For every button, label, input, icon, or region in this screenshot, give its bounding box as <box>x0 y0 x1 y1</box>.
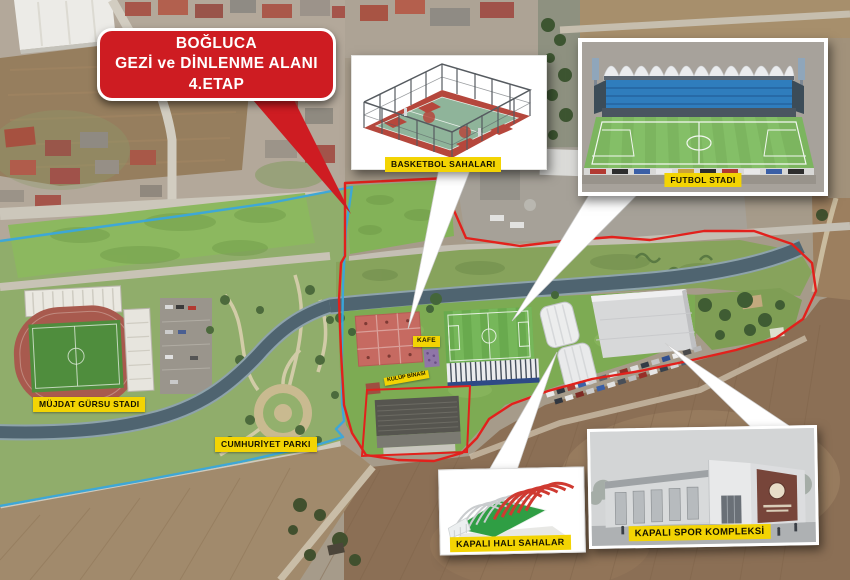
basketball-render <box>352 56 546 169</box>
inset-basketball-label: BASKETBOL SAHALARI <box>385 157 501 172</box>
aerial-masterplan-map: BASKETBOL SAHALARI <box>0 0 850 580</box>
inset-sports-complex: KAPALI SPOR KOMPLEKSİ <box>587 425 819 549</box>
stadium-render <box>582 42 816 184</box>
inset-covered-turf-label: KAPALI HALI SAHALAR <box>450 535 571 553</box>
map-cafe-plot <box>423 348 440 367</box>
map-football-field <box>444 307 535 366</box>
map-label-cumhuriyet-parki: CUMHURİYET PARKI <box>215 437 317 452</box>
project-title-callout: BOĞLUCA GEZİ ve DİNLENME ALANI 4.ETAP <box>97 28 336 101</box>
map-ribbed-building <box>446 359 539 388</box>
map-big-building <box>591 289 697 358</box>
callout-line-1: BOĞLUCA <box>176 34 257 54</box>
inset-basketball-courts: BASKETBOL SAHALARI <box>351 55 547 170</box>
map-label-kafe: KAFE <box>413 336 440 347</box>
inset-football-stadium: FUTBOL STADI <box>578 38 828 196</box>
callout-line-2: GEZİ ve DİNLENME ALANI <box>115 54 318 74</box>
map-label-mujdat-gursu-stadi: MÜJDAT GÜRSU STADI <box>33 397 145 412</box>
callout-line-3: 4.ETAP <box>189 75 245 95</box>
parking-lot <box>160 298 212 394</box>
inset-covered-turf: KAPALI HALI SAHALAR <box>438 466 586 555</box>
map-club-building <box>375 396 462 455</box>
inset-sports-complex-label: KAPALI SPOR KOMPLEKSİ <box>629 523 771 541</box>
inset-stadium-label: FUTBOL STADI <box>664 173 741 188</box>
